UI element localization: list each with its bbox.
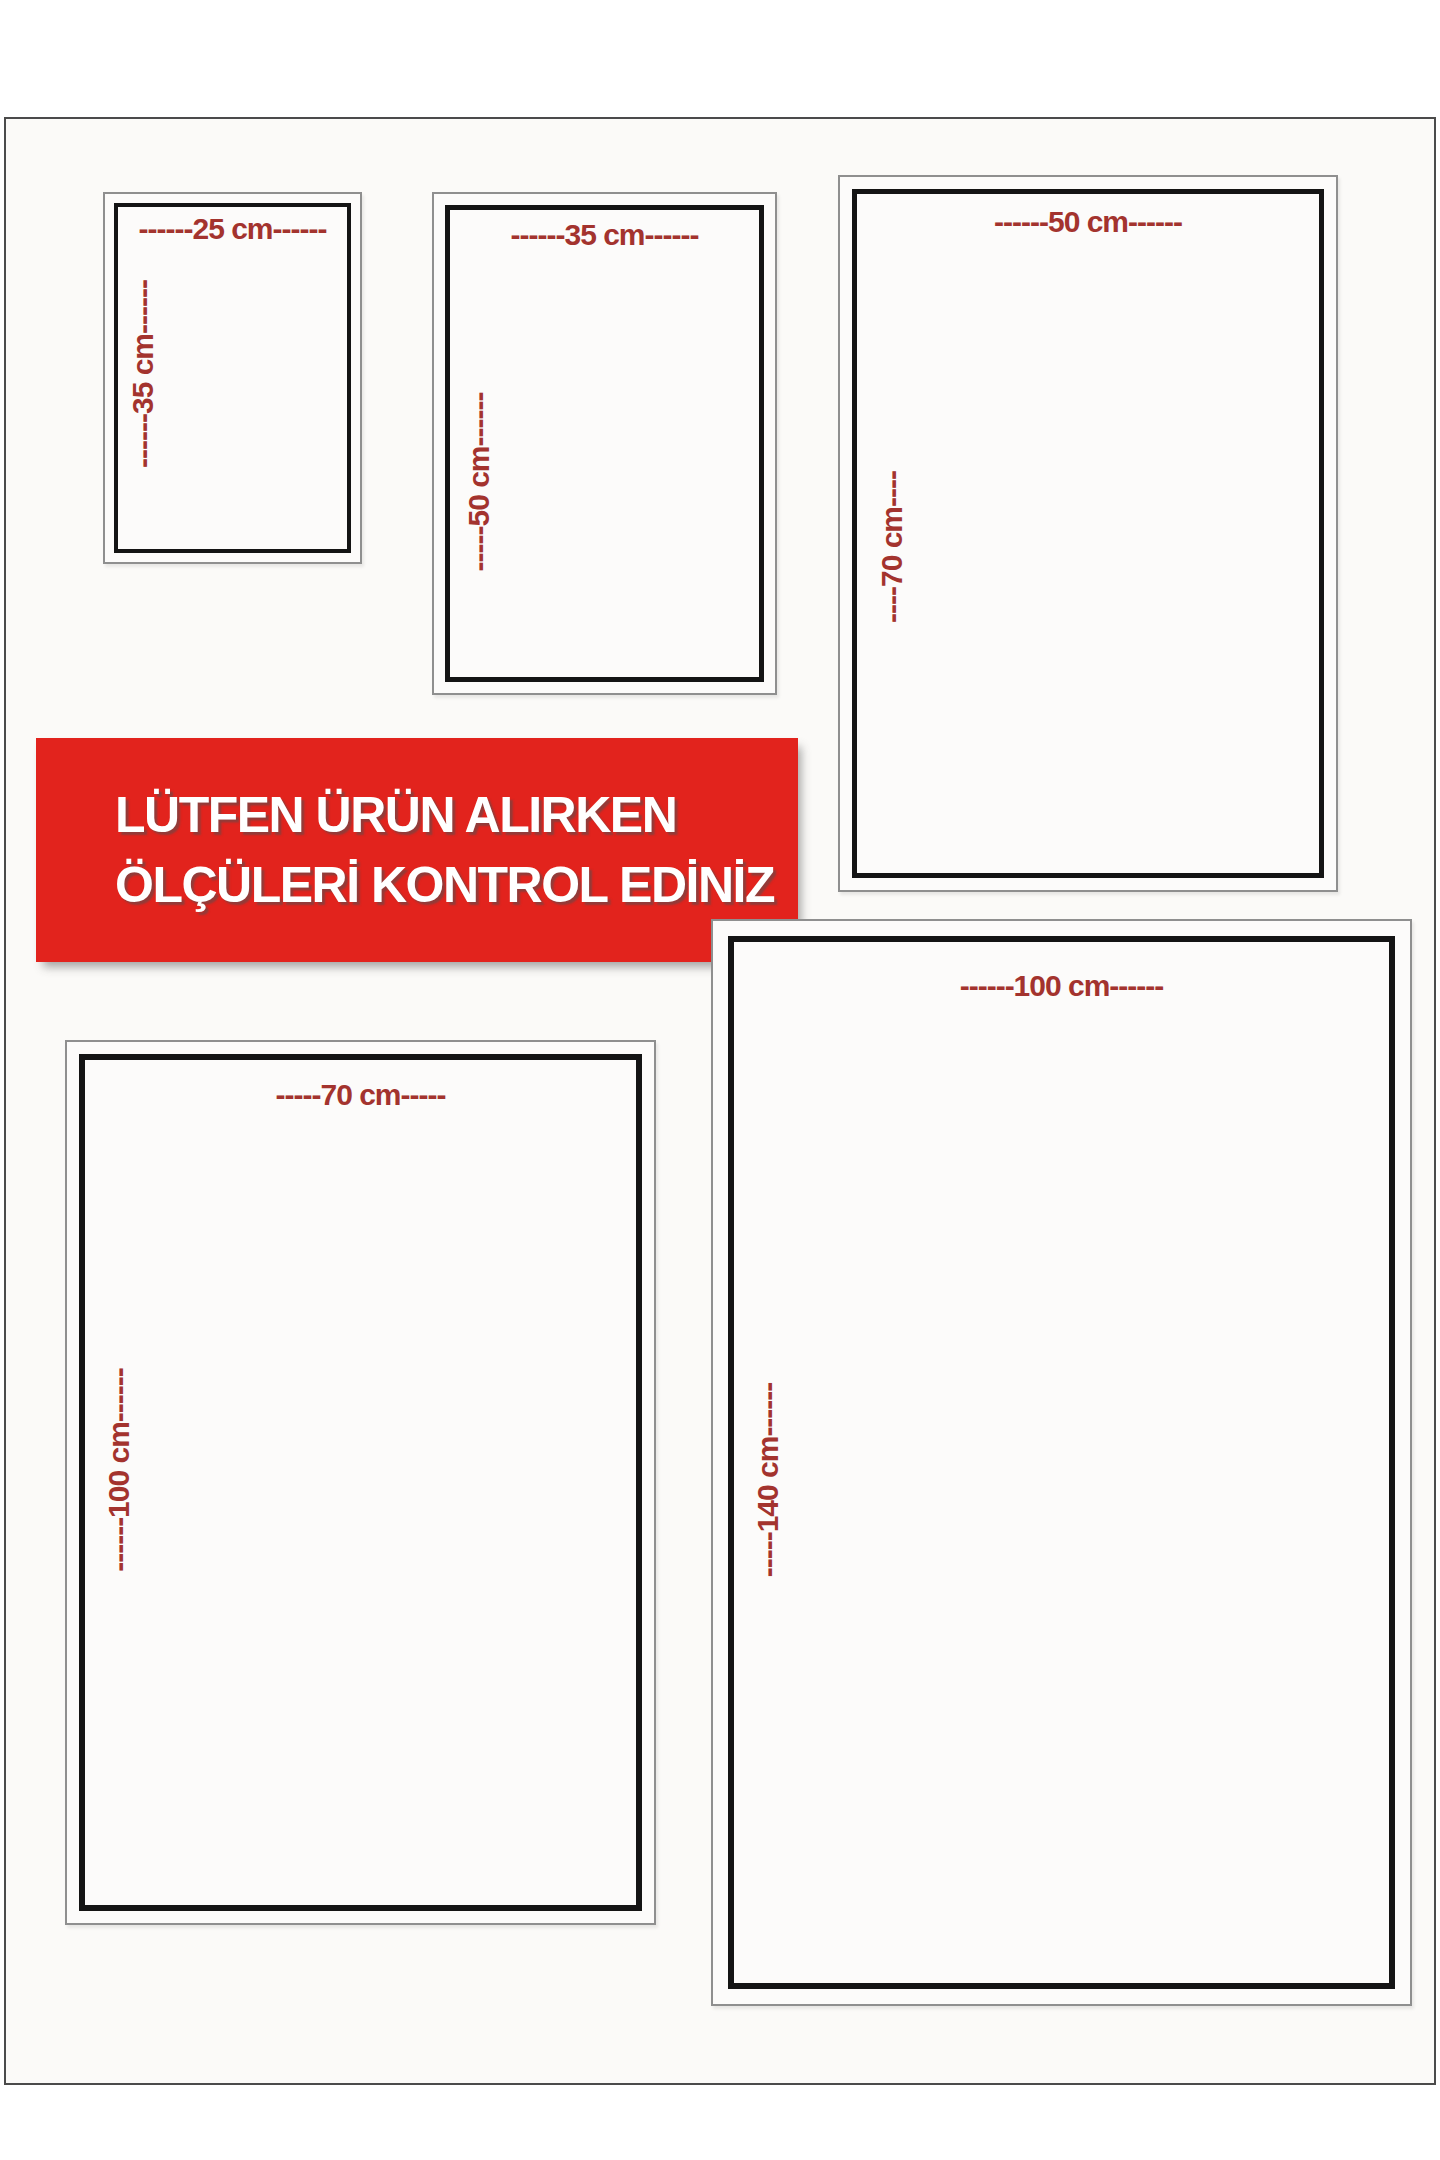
width-dimension-label: -----70 cm----- <box>276 1078 446 1112</box>
size-box-70x100: -----70 cm----- ------100 cm------ <box>65 1040 656 1925</box>
height-dimension-label: ----70 cm---- <box>875 471 909 623</box>
width-dimension-label: ------50 cm------ <box>994 205 1182 239</box>
size-guide-image: ------25 cm------ ------35 cm------ ----… <box>0 0 1440 2160</box>
width-dimension-label: ------25 cm------ <box>139 212 327 246</box>
warning-banner-line2: ÖLÇÜLERİ KONTROL EDİNİZ <box>115 850 798 920</box>
size-box-100x140: ------100 cm------ -----140 cm------ <box>711 919 1412 2006</box>
size-box-35x50: ------35 cm------ -----50 cm------ <box>432 192 777 695</box>
size-box-100x140-inner-border <box>728 936 1395 1989</box>
warning-banner: LÜTFEN ÜRÜN ALIRKEN ÖLÇÜLERİ KONTROL EDİ… <box>36 738 798 962</box>
size-box-25x35: ------25 cm------ ------35 cm------ <box>103 192 362 564</box>
size-box-70x100-inner-border <box>79 1054 642 1911</box>
height-dimension-label: ------35 cm------ <box>126 280 160 468</box>
height-dimension-label: ------100 cm------ <box>102 1368 136 1572</box>
height-dimension-label: -----50 cm------ <box>462 393 496 572</box>
height-dimension-label: -----140 cm------ <box>751 1383 785 1578</box>
warning-banner-line1: LÜTFEN ÜRÜN ALIRKEN <box>115 780 798 850</box>
size-box-50x70-inner-border <box>852 189 1324 878</box>
width-dimension-label: ------35 cm------ <box>511 218 699 252</box>
width-dimension-label: ------100 cm------ <box>960 969 1164 1003</box>
size-box-50x70: ------50 cm------ ----70 cm---- <box>838 175 1338 892</box>
